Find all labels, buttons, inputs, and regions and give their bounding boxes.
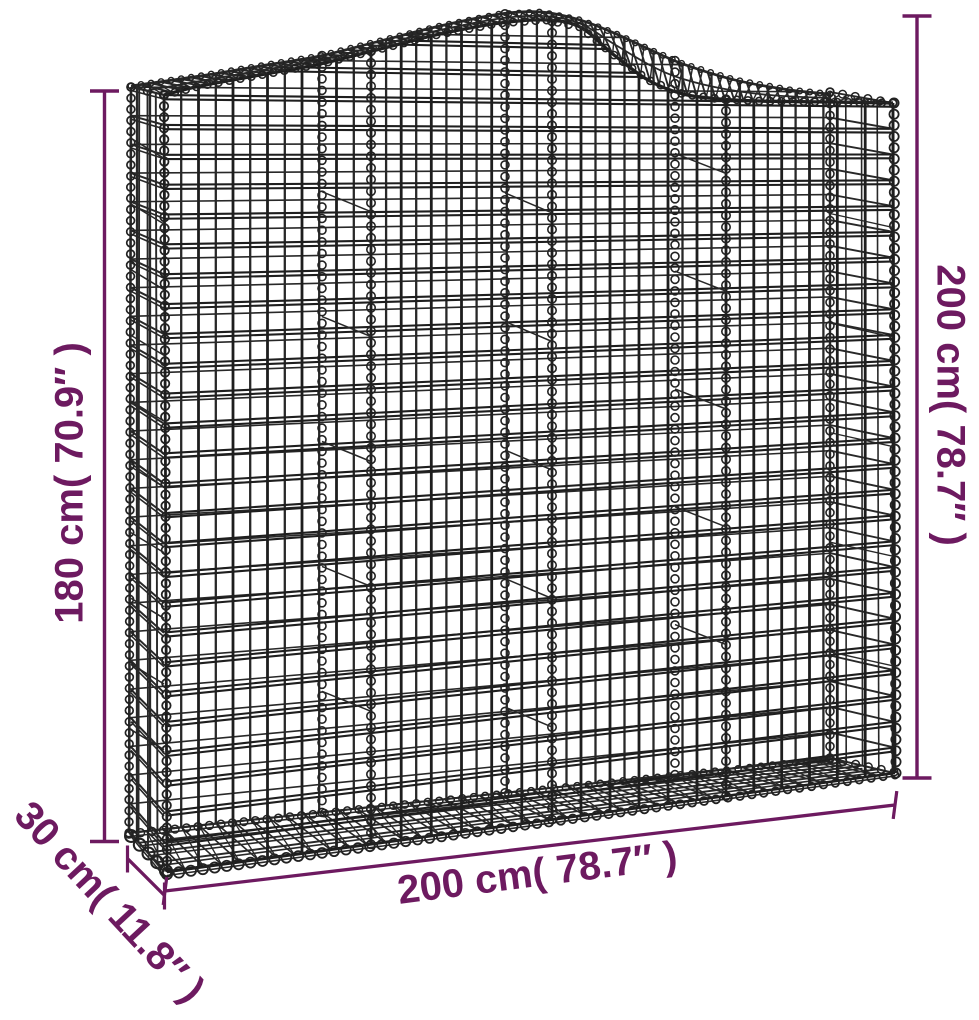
svg-text:200 cm( 78.7″ ): 200 cm( 78.7″ ) (395, 833, 680, 912)
svg-text:200 cm( 78.7″ ): 200 cm( 78.7″ ) (929, 264, 973, 546)
svg-text:180 cm( 70.9″ ): 180 cm( 70.9″ ) (48, 342, 92, 624)
